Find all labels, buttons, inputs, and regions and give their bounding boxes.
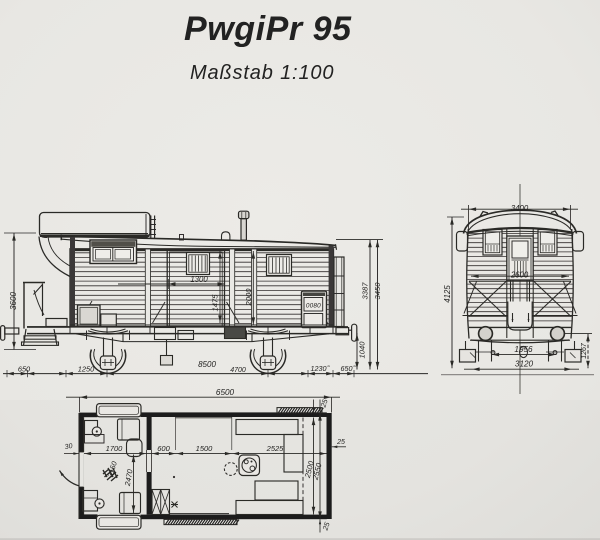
svg-text:1475: 1475 [211, 294, 220, 312]
svg-text:1040: 1040 [358, 341, 367, 359]
svg-text:2600: 2600 [510, 271, 529, 280]
svg-text:3120: 3120 [515, 360, 534, 369]
svg-text:4125: 4125 [443, 285, 452, 303]
svg-text:6500: 6500 [216, 388, 235, 397]
svg-text:1267: 1267 [581, 342, 588, 359]
svg-text:Maßstab 1:100: Maßstab 1:100 [190, 62, 334, 84]
svg-text:1956: 1956 [514, 345, 533, 354]
svg-text:2000: 2000 [244, 288, 253, 307]
svg-text:3400: 3400 [511, 204, 529, 213]
svg-text:4700: 4700 [230, 367, 246, 374]
svg-text:3387: 3387 [361, 282, 370, 300]
svg-text:0080: 0080 [306, 303, 321, 310]
svg-text:1230 ˜: 1230 ˜ [311, 364, 331, 373]
svg-text:650 ˜: 650 ˜ [341, 364, 357, 373]
svg-text:1250: 1250 [78, 365, 95, 374]
svg-text:1300: 1300 [190, 275, 208, 284]
svg-text:3450: 3450 [373, 282, 382, 300]
svg-text:PwgiPr 95: PwgiPr 95 [184, 10, 352, 48]
svg-text:8500: 8500 [198, 360, 216, 369]
svg-text:3600: 3600 [9, 292, 18, 310]
svg-text:650: 650 [18, 365, 31, 374]
